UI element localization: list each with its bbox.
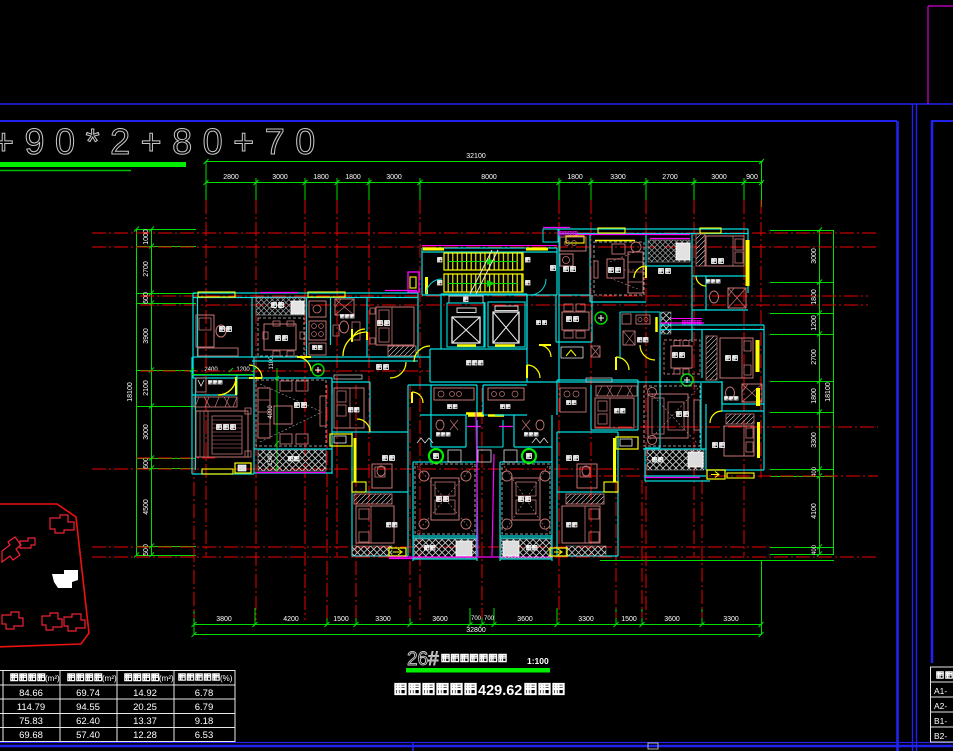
svg-text:A1-: A1- <box>934 686 947 696</box>
svg-text:3300: 3300 <box>723 616 739 623</box>
svg-text:B1-: B1- <box>934 716 947 726</box>
svg-text:6.53: 6.53 <box>195 730 214 741</box>
svg-text:1800: 1800 <box>811 388 818 404</box>
svg-text:1:100: 1:100 <box>527 656 549 666</box>
svg-text:62.40: 62.40 <box>76 716 100 727</box>
svg-text:1200: 1200 <box>811 315 818 331</box>
svg-text:1800: 1800 <box>811 289 818 305</box>
svg-text:2700: 2700 <box>143 261 150 277</box>
svg-text:3600: 3600 <box>664 616 680 623</box>
svg-text:3800: 3800 <box>216 616 232 623</box>
svg-text:3300: 3300 <box>578 616 594 623</box>
svg-text:(m²): (m²) <box>159 674 174 683</box>
svg-text:+90*2+80+70: +90*2+80+70 <box>0 121 326 162</box>
svg-text:700: 700 <box>484 616 495 622</box>
svg-text:900: 900 <box>746 174 758 181</box>
svg-text:1500: 1500 <box>333 616 349 623</box>
svg-text:600: 600 <box>143 292 150 304</box>
svg-text:84.66: 84.66 <box>19 688 43 699</box>
svg-text:2700: 2700 <box>662 174 678 181</box>
svg-text:32100: 32100 <box>466 153 486 160</box>
svg-text:3000: 3000 <box>811 248 818 264</box>
svg-text:2800: 2800 <box>223 174 239 181</box>
svg-text:1800: 1800 <box>313 174 329 181</box>
svg-text:3900: 3900 <box>143 328 150 344</box>
svg-text:(m²): (m²) <box>102 674 117 683</box>
svg-text:500: 500 <box>143 544 150 556</box>
svg-text:57.40: 57.40 <box>76 730 100 741</box>
svg-text:3300: 3300 <box>610 174 626 181</box>
svg-text:1000: 1000 <box>143 229 150 245</box>
svg-text:69.68: 69.68 <box>19 730 43 741</box>
svg-text:600: 600 <box>143 457 150 469</box>
svg-text:9.18: 9.18 <box>195 716 214 727</box>
svg-text:2700: 2700 <box>811 349 818 365</box>
svg-text:4200: 4200 <box>283 616 299 623</box>
svg-text:114.79: 114.79 <box>17 702 45 713</box>
svg-text:3000: 3000 <box>143 424 150 440</box>
svg-text:6.78: 6.78 <box>195 688 214 699</box>
svg-text:700: 700 <box>471 616 482 622</box>
svg-text:1500: 1500 <box>621 616 637 623</box>
svg-text:2100: 2100 <box>143 380 150 396</box>
svg-text:1800: 1800 <box>567 174 583 181</box>
svg-text:1100: 1100 <box>269 356 275 370</box>
svg-text:12.28: 12.28 <box>133 730 157 741</box>
svg-text:3600: 3600 <box>517 616 533 623</box>
svg-text:(%): (%) <box>220 674 233 683</box>
svg-text:69.74: 69.74 <box>76 688 100 699</box>
svg-text:75.83: 75.83 <box>19 716 43 727</box>
svg-text:32800: 32800 <box>466 627 486 634</box>
svg-text:(m²): (m²) <box>45 674 60 683</box>
svg-text:429.62: 429.62 <box>478 683 522 699</box>
svg-text:400: 400 <box>812 544 818 555</box>
svg-text:94.55: 94.55 <box>76 702 100 713</box>
svg-text:6.79: 6.79 <box>195 702 214 713</box>
svg-text:3600: 3600 <box>432 616 448 623</box>
svg-text:1200: 1200 <box>236 367 250 373</box>
svg-text:3300: 3300 <box>811 432 818 448</box>
svg-text:18100: 18100 <box>825 382 832 402</box>
svg-text:20.25: 20.25 <box>133 702 157 713</box>
svg-text:18100: 18100 <box>127 382 134 402</box>
svg-text:A2-: A2- <box>934 701 947 711</box>
svg-text:400: 400 <box>812 466 818 477</box>
svg-text:4500: 4500 <box>143 499 150 515</box>
svg-text:B2-: B2- <box>934 731 947 741</box>
svg-text:26#: 26# <box>407 649 439 670</box>
svg-text:14.92: 14.92 <box>133 688 157 699</box>
svg-text:1800: 1800 <box>345 174 361 181</box>
svg-text:3300: 3300 <box>375 616 391 623</box>
svg-text:13.37: 13.37 <box>133 716 157 727</box>
svg-text:8000: 8000 <box>481 174 497 181</box>
svg-text:3000: 3000 <box>386 174 402 181</box>
svg-text:3000: 3000 <box>272 174 288 181</box>
svg-text:3000: 3000 <box>711 174 727 181</box>
svg-text:4100: 4100 <box>811 503 818 519</box>
